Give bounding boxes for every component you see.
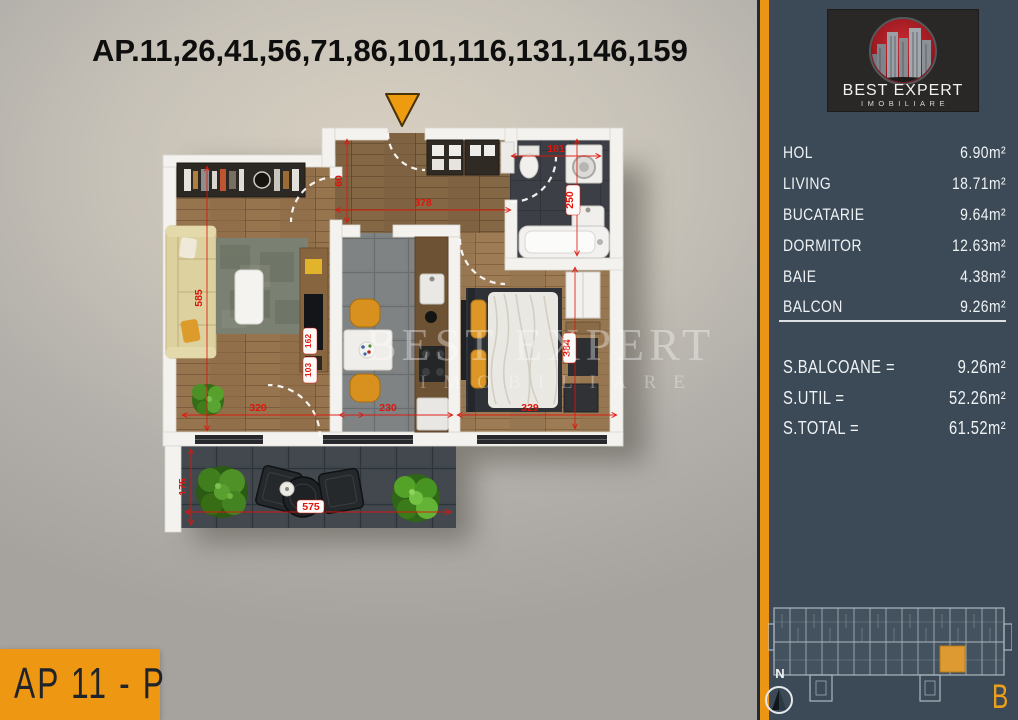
dim-balcony-h: 175 bbox=[177, 478, 189, 496]
dim-bath-w: 181 bbox=[547, 143, 565, 155]
room-row: BAIE 4.38m² bbox=[783, 267, 1006, 287]
brand-logo: BEST EXPERT IMOBILIARE bbox=[828, 10, 978, 111]
dim-detail-a: 162 bbox=[303, 334, 313, 348]
room-row: LIVING 18.71m² bbox=[783, 174, 1006, 194]
dim-living-h: 585 bbox=[193, 289, 205, 307]
logo-name: BEST EXPERT bbox=[843, 82, 964, 99]
room-area: 9.26m² bbox=[960, 297, 1006, 317]
logo-tagline: IMOBILIARE bbox=[861, 99, 949, 108]
dim-bedroom-w: 329 bbox=[521, 402, 539, 414]
dim-bath-h: 250 bbox=[564, 191, 576, 209]
total-row: S.BALCOANE = 9.26m² bbox=[783, 357, 1006, 378]
dim-living-w: 320 bbox=[249, 402, 267, 414]
room-area: 4.38m² bbox=[960, 267, 1006, 287]
room-name: BAIE bbox=[783, 267, 816, 287]
compass-icon bbox=[762, 681, 798, 719]
room-name: BUCATARIE bbox=[783, 205, 864, 225]
balcony-plant-left-icon bbox=[196, 466, 248, 518]
room-row: DORMITOR 12.63m² bbox=[783, 236, 1006, 256]
compass: N bbox=[762, 666, 798, 720]
dim-detail-b: 103 bbox=[303, 363, 313, 377]
room-area: 9.64m² bbox=[960, 205, 1006, 225]
total-value: 9.26m² bbox=[958, 357, 1006, 378]
flyer-page: 585 320 230 329 378 60 181 250 384 175 5… bbox=[0, 0, 1018, 720]
room-area: 18.71m² bbox=[952, 174, 1006, 194]
highlighted-unit bbox=[940, 646, 965, 672]
living-plant-icon bbox=[192, 384, 224, 416]
watermark-line2: IMOBILIARE bbox=[420, 372, 702, 394]
section-letter: B bbox=[992, 678, 1008, 717]
room-area: 6.90m² bbox=[960, 143, 1006, 163]
total-label: S.UTIL = bbox=[783, 388, 844, 409]
room-row: BUCATARIE 9.64m² bbox=[783, 205, 1006, 225]
total-value: 61.52m² bbox=[949, 418, 1006, 439]
page-title: AP.11,26,41,56,71,86,101,116,131,146,159 bbox=[92, 33, 688, 69]
total-label: S.BALCOANE = bbox=[783, 357, 895, 378]
dim-hall-w: 378 bbox=[414, 197, 432, 209]
dim-balcony-w: 575 bbox=[302, 501, 320, 513]
room-name: LIVING bbox=[783, 174, 831, 194]
room-area: 12.63m² bbox=[952, 236, 1006, 256]
watermark-line1: BEST EXPERT bbox=[366, 318, 715, 371]
windows bbox=[195, 435, 607, 444]
compass-north-label: N bbox=[762, 666, 798, 681]
total-value: 52.26m² bbox=[949, 388, 1006, 409]
building-overview-plan bbox=[768, 598, 1012, 710]
brand-logo-icon: BEST EXPERT IMOBILIARE bbox=[828, 10, 978, 111]
dim-kitchen-w: 230 bbox=[379, 402, 397, 414]
room-row: BALCON 9.26m² bbox=[783, 297, 1006, 317]
room-name: HOL bbox=[783, 143, 813, 163]
room-row: HOL 6.90m² bbox=[783, 143, 1006, 163]
total-row: S.TOTAL = 61.52m² bbox=[783, 418, 1006, 439]
sidebar-divider bbox=[779, 320, 1006, 322]
apartment-label: AP 11 - P bbox=[14, 659, 166, 709]
room-name: BALCON bbox=[783, 297, 843, 317]
dim-hall-d: 60 bbox=[333, 175, 345, 187]
room-name: DORMITOR bbox=[783, 236, 862, 256]
hall-closets bbox=[427, 140, 514, 175]
total-row: S.UTIL = 52.26m² bbox=[783, 388, 1006, 409]
balcony-plant-right-icon bbox=[392, 474, 440, 522]
total-label: S.TOTAL = bbox=[783, 418, 859, 439]
apartment-label-box: AP 11 - P bbox=[0, 649, 160, 720]
entrance-marker-icon bbox=[386, 94, 419, 126]
